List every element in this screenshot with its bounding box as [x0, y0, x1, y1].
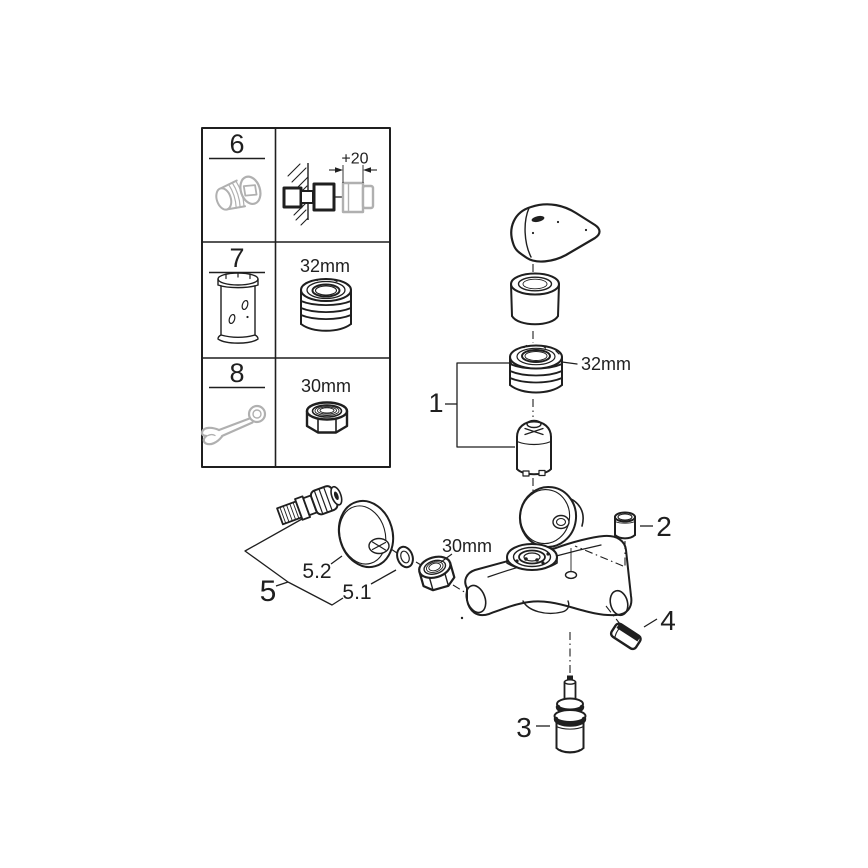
callout-1-label: 1 — [428, 388, 443, 418]
row-7-dimension: 32mm — [300, 256, 350, 276]
union-nut-dimension: 30mm — [441, 536, 492, 562]
diverter-cartridge-part — [555, 632, 586, 753]
union-nut-dim-label: 30mm — [442, 536, 492, 556]
union-nut-part — [417, 553, 456, 592]
dim-plus20-label: +20 — [341, 151, 368, 168]
callout-5-label: 5 — [260, 575, 277, 608]
cartridge-ring-nut-part — [510, 346, 562, 393]
ring-nut-dim-label: 32mm — [581, 354, 631, 374]
cartridge-part — [517, 421, 551, 477]
row-7-number: 7 — [229, 243, 244, 273]
accessory-table: 6 — [202, 128, 390, 467]
s-union-part — [276, 482, 345, 528]
row-8-number: 8 — [229, 358, 244, 388]
handle-dome-cap-part — [511, 274, 559, 325]
table-border — [202, 128, 390, 467]
extension-part-gray — [343, 183, 363, 212]
callout-1: 1 — [428, 363, 515, 447]
callout-3: 3 — [516, 712, 550, 743]
callout-4: 4 — [644, 605, 676, 636]
ring-nut-dimension: 32mm — [562, 354, 631, 374]
callout-2: 2 — [640, 511, 672, 542]
cartridge-seat-ring-part — [507, 544, 557, 570]
row-6-number: 6 — [229, 129, 244, 159]
exploded-parts-diagram-page: 6 — [0, 0, 868, 868]
washer-part — [394, 545, 415, 570]
callout-5-2-label: 5.2 — [302, 560, 331, 583]
deck-screw-hole — [566, 572, 577, 579]
callout-4-label: 4 — [660, 605, 676, 636]
cartridge-cover-escutcheon-part — [516, 483, 583, 550]
wall-rosette-part — [331, 494, 400, 573]
row-8-dimension: 30mm — [301, 376, 351, 396]
hex-nut-30mm-icon — [307, 403, 347, 433]
lever-handle-part — [511, 204, 599, 261]
callout-5-1-label: 5.1 — [342, 581, 371, 604]
callout-2-label: 2 — [656, 511, 672, 542]
faucet-exploded-diagram: 6 — [0, 0, 868, 868]
callout-3-label: 3 — [516, 712, 532, 743]
